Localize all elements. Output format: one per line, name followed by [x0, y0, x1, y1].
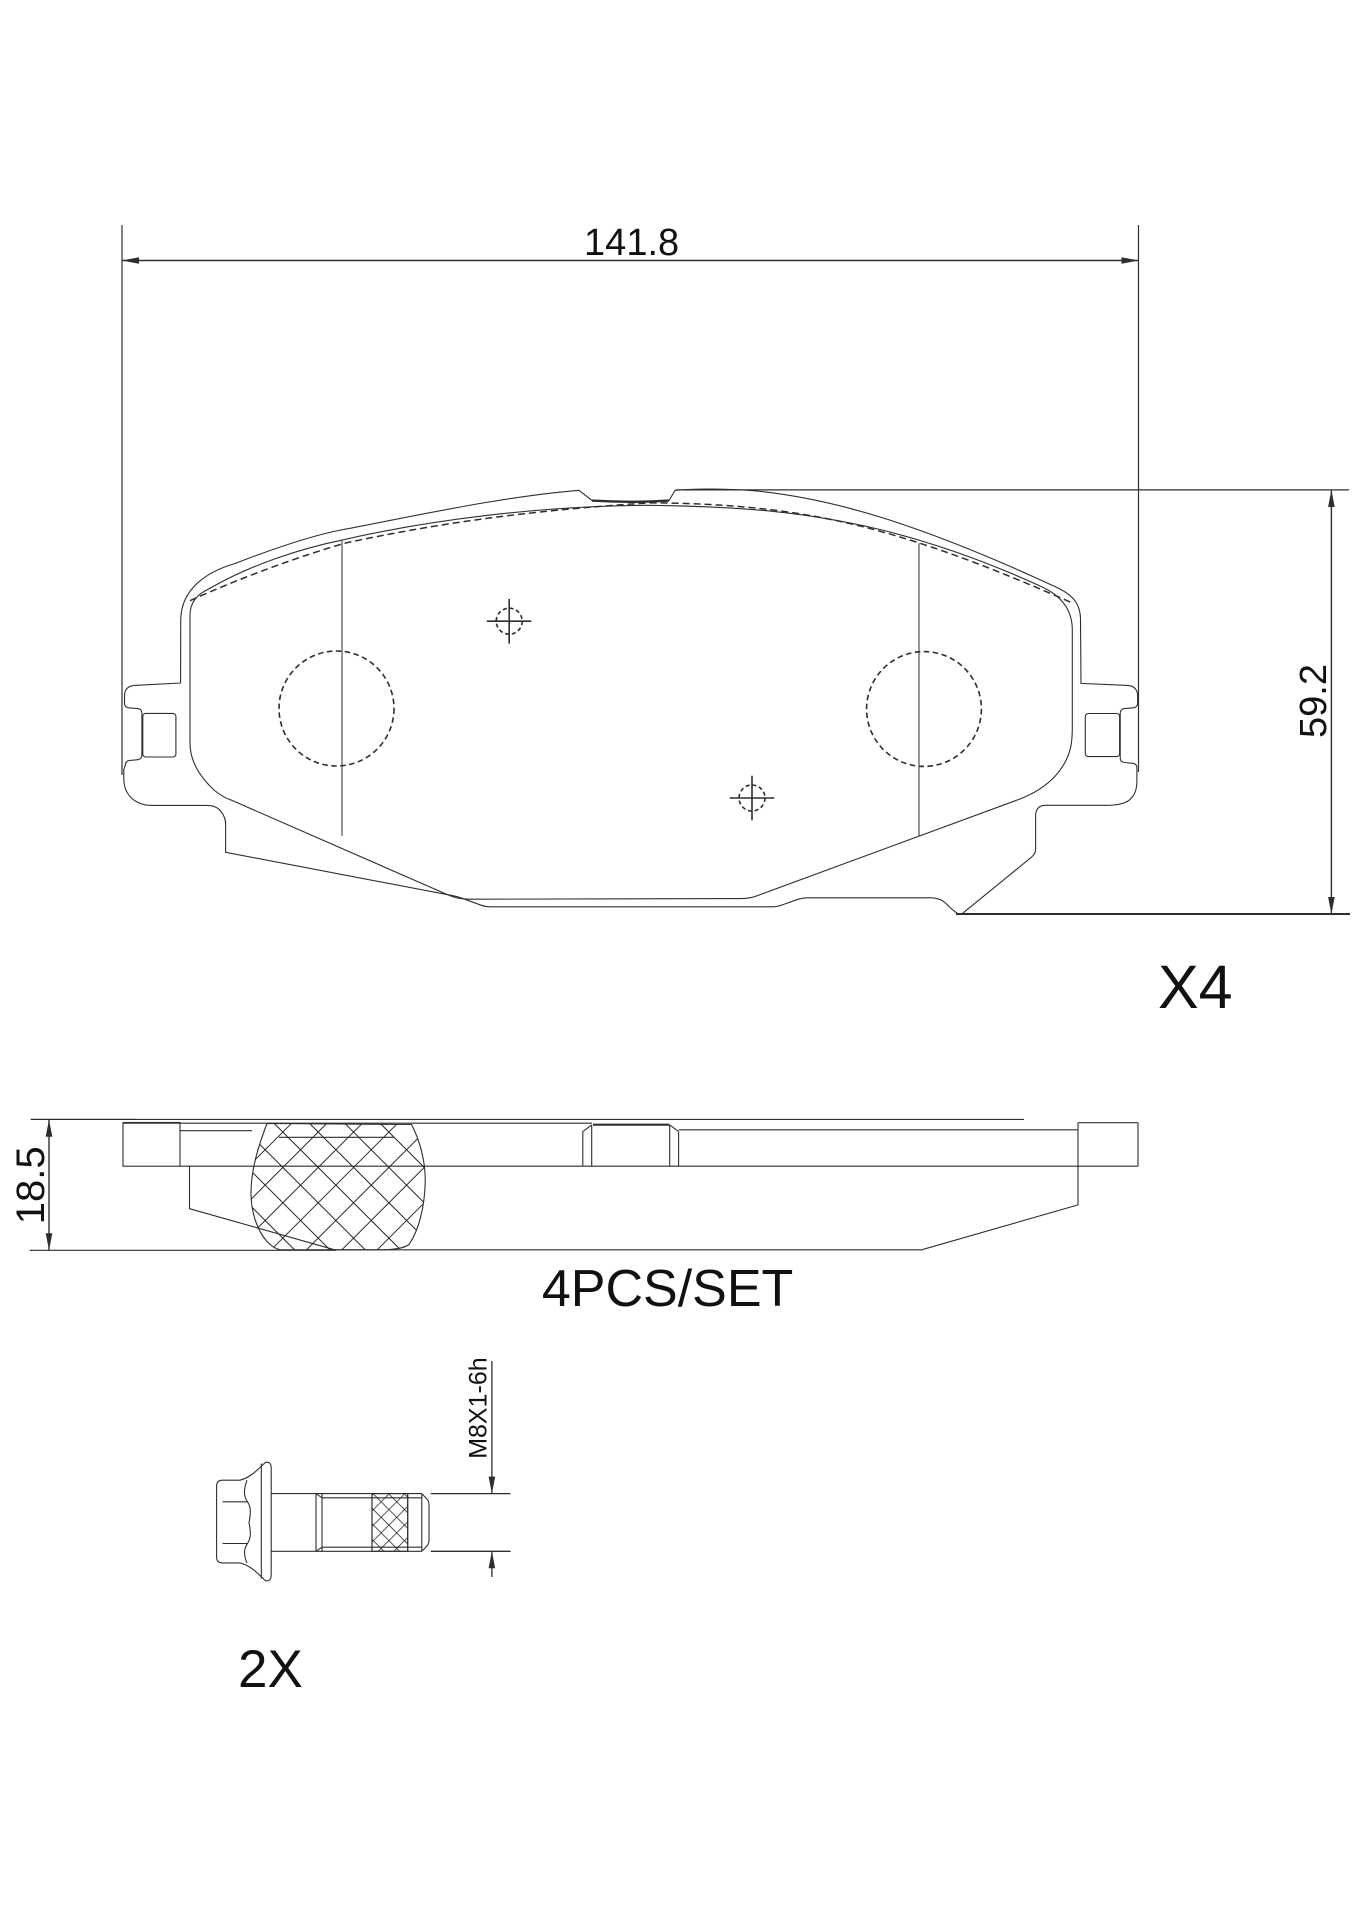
svg-text:X4: X4	[1158, 953, 1233, 1021]
svg-text:M8X1-6h: M8X1-6h	[464, 1357, 492, 1458]
svg-text:141.8: 141.8	[584, 222, 679, 264]
svg-text:2X: 2X	[238, 1640, 303, 1699]
svg-text:4PCS/SET: 4PCS/SET	[542, 1260, 793, 1318]
svg-text:59.2: 59.2	[1293, 664, 1335, 738]
svg-text:18.5: 18.5	[9, 1146, 53, 1224]
